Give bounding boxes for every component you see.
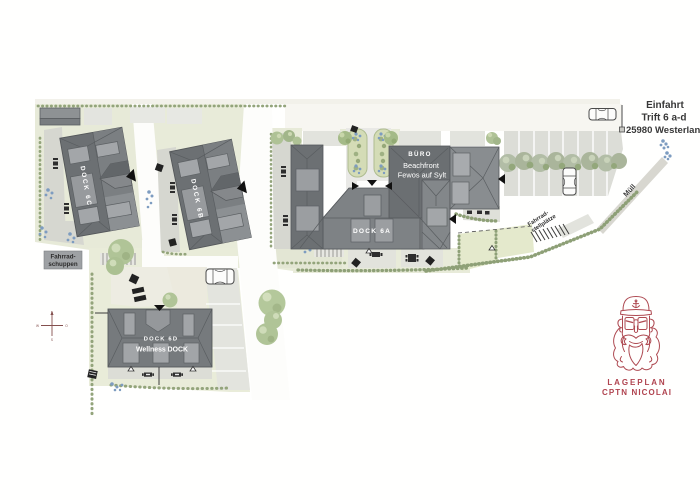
svg-text:LAGEPLAN: LAGEPLAN [607,378,666,387]
svg-text:W: W [36,324,39,328]
svg-text:schuppen: schuppen [48,261,77,268]
svg-text:DOCK 6A: DOCK 6A [353,228,391,235]
svg-text:Wellness DOCK: Wellness DOCK [136,347,188,354]
svg-text:DOCK 6D: DOCK 6D [144,337,179,343]
svg-text:CPTN NICOLAI: CPTN NICOLAI [602,388,672,397]
svg-text:Trift 6 a-d: Trift 6 a-d [641,113,686,124]
svg-text:Beachfront: Beachfront [403,161,439,170]
svg-text:25980 Westerland: 25980 Westerland [626,125,700,136]
svg-text:S: S [51,338,53,342]
svg-text:Fewos auf Sylt: Fewos auf Sylt [398,171,446,180]
svg-text:Einfahrt: Einfahrt [646,100,684,111]
svg-text:Fahrrad-: Fahrrad- [50,254,75,261]
svg-text:BÜRO: BÜRO [408,151,431,158]
